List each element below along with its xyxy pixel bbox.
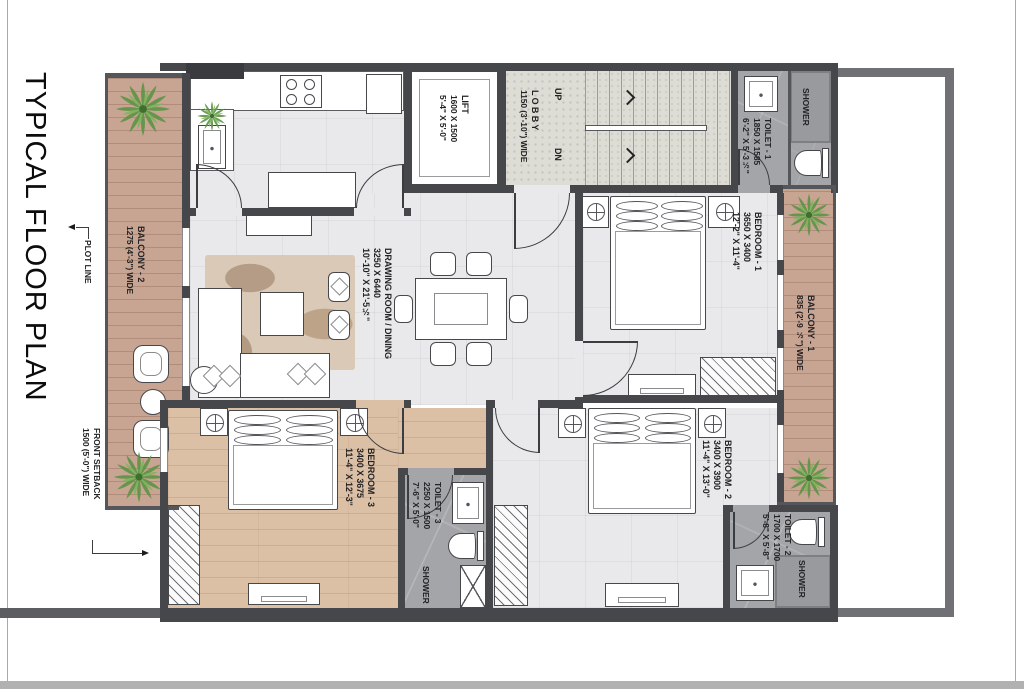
toilet-2-label: TOILET - 2 1700 X 1700 5'-8" X 5'-8" <box>760 514 793 561</box>
balcony-2-dim: 1275 (4'-3") WIDE <box>124 226 135 294</box>
window-bedroom1-a <box>777 215 784 260</box>
plot-line-leader2 <box>76 227 89 228</box>
lobby-dim: 1150 (3'-10") WIDE <box>518 90 529 162</box>
wc-icon-toilet-2 <box>789 519 817 545</box>
dining-chair-1 <box>430 252 456 276</box>
toilet-3-name: TOILET - 3 <box>432 482 443 529</box>
compound-wall-right <box>945 68 954 617</box>
shower-3-label: SHOWER <box>420 566 431 604</box>
burner-1-icon <box>286 79 297 90</box>
wardrobe-bedroom-2 <box>494 505 528 606</box>
wc-icon-toilet-1 <box>794 150 822 176</box>
compound-wall-top <box>836 68 954 77</box>
burner-4-icon <box>304 94 315 105</box>
window-bedroom3 <box>160 428 168 472</box>
shower-1-label: SHOWER <box>800 88 811 126</box>
burner-3-icon <box>286 94 297 105</box>
lobby-name: L O B B Y <box>529 90 540 162</box>
balcony-2-name: BALCONY - 2 <box>135 226 146 294</box>
fridge <box>366 74 402 114</box>
pillow <box>234 425 281 435</box>
wall-balcony2-top <box>105 73 186 78</box>
wall-bottom <box>160 608 838 622</box>
toilet-2-dim-mm: 1700 X 1700 <box>771 514 782 561</box>
wall-outer-right-bottom <box>830 505 838 617</box>
basin-icon-toilet-1 <box>744 76 778 112</box>
burner-2-icon <box>304 79 315 90</box>
floor-plan-canvas: TYPICAL FLOOR PLAN PLOT LINE FRONT SETBA… <box>0 0 1024 689</box>
dining-chair-2 <box>466 252 492 276</box>
balcony-1-name: BALCONY - 1 <box>805 295 816 371</box>
toilet-1-name: TOILET - 1 <box>762 118 773 174</box>
toilet-3-dim-ft: 7'-6" X 5'-0" <box>410 482 421 529</box>
bedroom-2-dim-mm: 3400 X 3900 <box>711 440 722 499</box>
front-setback-leader <box>92 540 93 554</box>
wall-kitchen-lift <box>404 71 411 193</box>
plot-line-leader <box>88 227 89 239</box>
wall-stairs-toilet1 <box>731 63 738 193</box>
bedroom-3-passage <box>398 408 488 470</box>
dining-chair-3 <box>430 342 456 366</box>
stairs-up-label: UP <box>552 88 563 100</box>
door-gap-bedroom-2 <box>495 400 538 408</box>
window-bedroom2-balcony <box>777 425 784 473</box>
drawing-dining-label: DRAWING ROOM / DINING 3250 X 6440 10'-10… <box>360 248 393 359</box>
door-gap-bedroom-1 <box>575 341 583 397</box>
wall-toilet1-shower <box>788 71 791 189</box>
pillow <box>594 423 640 433</box>
bedroom-2-name: BEDROOM - 2 <box>722 440 733 499</box>
pillow <box>645 413 691 423</box>
compound-wall-bottom-right <box>836 608 954 617</box>
plant-icon-kitchen <box>196 100 228 132</box>
front-setback-arrow-icon <box>142 550 149 556</box>
dresser-bedroom-2 <box>605 583 679 607</box>
pillow <box>661 211 703 221</box>
pillow <box>645 433 691 443</box>
drawing-dining-name: DRAWING ROOM / DINING <box>382 248 393 359</box>
basin-icon-toilet-3 <box>452 482 484 524</box>
lamp-icon-1a <box>587 203 605 221</box>
bedroom-1-name: BEDROOM - 1 <box>752 212 763 271</box>
bedroom-1-dim-mm: 3650 X 3400 <box>741 212 752 271</box>
toilet-3-label: TOILET - 3 2250 X 1500 7'-6" X 5'-0" <box>410 482 443 529</box>
door-leaf-kitchen-2 <box>402 164 404 208</box>
coffee-table <box>260 292 304 336</box>
front-setback-label: FRONT SETBACK 1500 (5'-0") WIDE <box>80 428 102 499</box>
lift-dim-ft: 5'-4" X 5'-0" <box>437 95 448 142</box>
stairs-dn-label: DN <box>552 148 563 161</box>
pillow <box>286 415 333 425</box>
plant-icon-balcony1-bottom <box>786 455 832 501</box>
lamp-icon-2b <box>704 415 722 433</box>
window-drawing-1 <box>182 228 190 286</box>
pillow <box>594 413 640 423</box>
wall-lift-bottom <box>404 185 512 193</box>
dining-chair-6 <box>509 295 528 323</box>
wall-toilet3-left <box>398 468 405 622</box>
stair-rail <box>585 125 707 131</box>
window-drawing-2 <box>182 298 190 386</box>
plot-line-label: PLOT LINE <box>82 240 93 284</box>
balcony-2-label: BALCONY - 2 1275 (4'-3") WIDE <box>124 226 146 294</box>
basin-icon-toilet-2 <box>736 565 774 601</box>
page-title: TYPICAL FLOOR PLAN <box>18 72 51 402</box>
lift-name: LIFT <box>459 95 470 142</box>
balcony-chair-2-seat <box>140 427 162 451</box>
wall-balcony1-outer <box>833 185 836 507</box>
front-setback-leader2 <box>92 553 142 554</box>
bedroom-2-dim-ft: 11'-4" X 13'-0" <box>700 440 711 499</box>
door-leaf-kitchen-1 <box>196 164 198 208</box>
plant-icon-balcony1-top <box>786 192 832 238</box>
lamp-icon-3a <box>206 414 224 432</box>
balcony-1-label: BALCONY - 1 835 (2'-9 ½") WIDE <box>794 295 816 371</box>
wc-tank-toilet-1 <box>822 148 829 178</box>
sheet-frame-right <box>1015 0 1016 689</box>
door-leaf-entrance <box>514 193 516 249</box>
door-gap-toilet-3 <box>408 468 454 475</box>
dresser-1-detail <box>640 388 684 394</box>
tv-console <box>246 214 312 236</box>
wall-outer-right-top <box>831 63 838 193</box>
door-gap-bedroom-3 <box>356 400 404 408</box>
plant-icon-balcony2-bottom <box>112 450 166 504</box>
wall-bedroom1-bottom <box>575 395 784 403</box>
bedroom-3-dim-ft: 11'-4" X 12'-3" <box>343 448 354 507</box>
door-gap-entrance <box>514 185 570 193</box>
wall-pillar <box>186 63 244 79</box>
wall-kitchen-left <box>182 73 190 216</box>
door-leaf-bedroom-3 <box>402 408 404 454</box>
pillow <box>234 415 281 425</box>
door-leaf-toilet-3 <box>407 475 409 519</box>
pillow <box>616 211 658 221</box>
lift-label: LIFT 1600 X 1500 5'-4" X 5'-0" <box>437 95 470 142</box>
wardrobe-bedroom-1 <box>700 357 776 397</box>
bedroom-3-dim-mm: 3400 X 3675 <box>354 448 365 507</box>
bedroom-2-label: BEDROOM - 2 3400 X 3900 11'-4" X 13'-0" <box>700 440 733 499</box>
drawing-dining-dim-ft: 10'-10" X 21'-5½" <box>360 248 371 359</box>
toilet-3-dim-mm: 2250 X 1500 <box>421 482 432 529</box>
pillow <box>661 221 703 231</box>
bedroom-3-label: BEDROOM - 3 3400 X 3675 11'-4" X 12'-3" <box>343 448 376 507</box>
pillow <box>234 435 281 445</box>
pillow <box>286 435 333 445</box>
pillow <box>616 221 658 231</box>
lobby-label: L O B B Y 1150 (3'-10") WIDE <box>518 90 540 162</box>
window-bedroom1-b <box>777 275 784 330</box>
toilet-2-name: TOILET - 2 <box>782 514 793 561</box>
dining-runner <box>434 293 488 325</box>
duct-shaft <box>460 565 486 608</box>
dresser-2-detail <box>618 597 666 603</box>
plot-line-arrow-icon <box>68 224 75 230</box>
dining-chair-4 <box>466 342 492 366</box>
front-setback-line1: FRONT SETBACK <box>91 428 102 499</box>
dresser-3-detail <box>261 596 307 602</box>
door-gap-toilet-1 <box>738 185 770 193</box>
wall-balcony2-left <box>105 75 108 510</box>
toilet-1-dim-ft: 6'-2" X 5'-3½" <box>740 118 751 174</box>
bedroom-1-dim-ft: 12'-2" X 11'-4" <box>730 212 741 271</box>
bedroom-1-label: BEDROOM - 1 3650 X 3400 12'-2" X 11'-4" <box>730 212 763 271</box>
shower-2-label: SHOWER <box>796 560 807 598</box>
wc-tank-toilet-2 <box>818 517 825 547</box>
sheet-frame-bottom <box>0 681 1024 689</box>
wc-icon-toilet-3 <box>448 533 476 559</box>
door-leaf-toilet-2 <box>733 512 735 549</box>
door-leaf-bedroom-1 <box>583 341 638 343</box>
wall-toilet2-left <box>723 505 730 615</box>
balcony-chair-1-seat <box>140 352 162 376</box>
door-gap-kitchen-2 <box>354 208 404 216</box>
wc-tank-toilet-3 <box>477 531 484 561</box>
balcony-1-dim: 835 (2'-9 ½") WIDE <box>794 295 805 371</box>
lamp-icon-2a <box>564 415 582 433</box>
door-leaf-bedroom-2 <box>538 408 540 453</box>
toilet-1-dim-mm: 1850 X 1585 <box>751 118 762 174</box>
wall-bedroom2-left <box>486 400 493 622</box>
toilet-2-dim-ft: 5'-8" X 5'-8" <box>760 514 771 561</box>
drawing-dining-dim-mm: 3250 X 6440 <box>371 248 382 359</box>
front-setback-line2: 1500 (5'-0") WIDE <box>80 428 91 499</box>
pillow <box>645 423 691 433</box>
window-bedroom1-c <box>777 348 784 390</box>
room-lobby <box>504 71 585 189</box>
pillow <box>661 201 703 211</box>
door-gap-toilet-2 <box>733 505 769 512</box>
dining-chair-5 <box>394 295 413 323</box>
lift-dim-mm: 1600 X 1500 <box>448 95 459 142</box>
wardrobe-bedroom-3 <box>168 505 200 605</box>
plant-icon-balcony2-top <box>114 80 172 138</box>
sheet-frame-left <box>7 0 8 689</box>
bedroom-3-name: BEDROOM - 3 <box>365 448 376 507</box>
door-gap-kitchen-1 <box>196 208 242 216</box>
kitchen-island <box>268 172 356 208</box>
pillow <box>594 433 640 443</box>
pillow <box>616 201 658 211</box>
compound-wall-bottom-left <box>0 608 162 618</box>
pillow <box>286 425 333 435</box>
wall-balcony1-top <box>783 185 836 189</box>
toilet-1-label: TOILET - 1 1850 X 1585 6'-2" X 5'-3½" <box>740 118 773 174</box>
wall-lift-lobby <box>498 63 506 193</box>
